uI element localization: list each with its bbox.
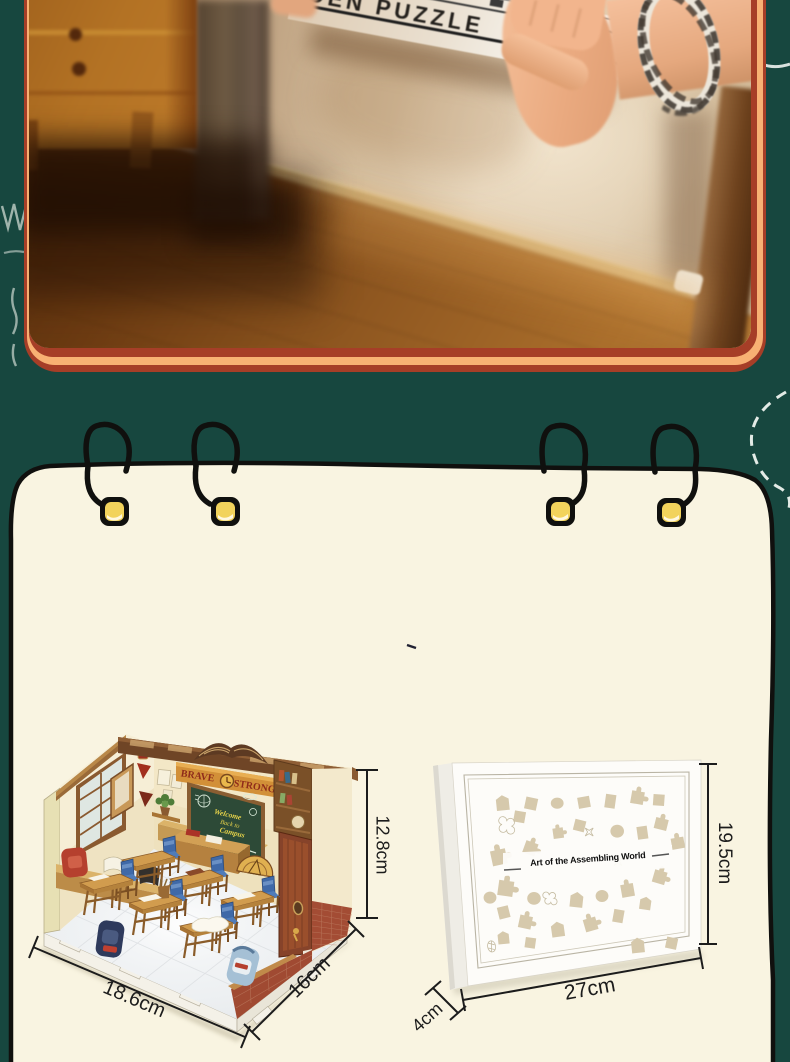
svg-text:19.5cm: 19.5cm	[714, 822, 735, 884]
svg-text:12.8cm: 12.8cm	[372, 815, 392, 874]
